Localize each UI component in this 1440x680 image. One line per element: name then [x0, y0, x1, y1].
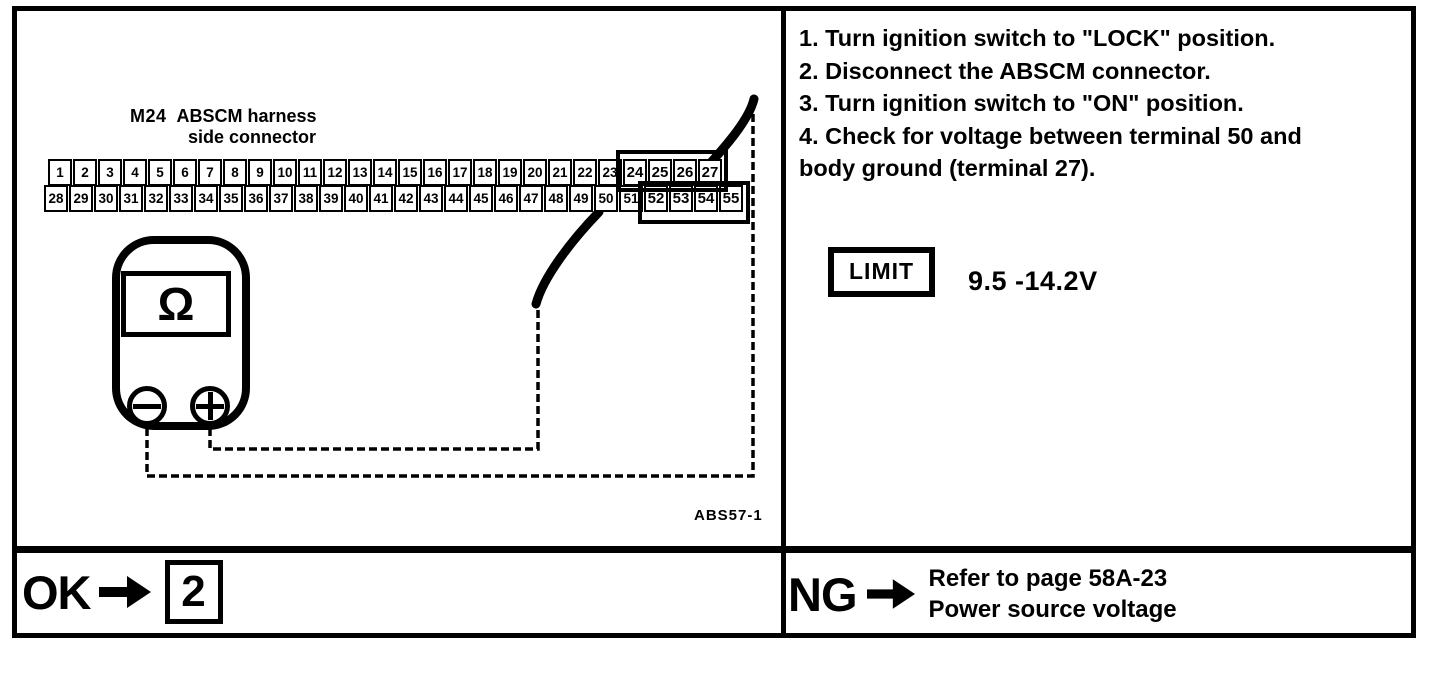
instruction-line: body ground (terminal 27). — [799, 152, 1399, 185]
terminal-32: 32 — [144, 185, 168, 212]
terminal-40: 40 — [344, 185, 368, 212]
terminal-31: 31 — [119, 185, 143, 212]
terminal-10: 10 — [273, 159, 297, 186]
terminal-5: 5 — [148, 159, 172, 186]
terminal-24: 24 — [623, 159, 647, 186]
ohm-symbol: Ω — [158, 277, 195, 331]
terminal-49: 49 — [569, 185, 593, 212]
ng-reference-text: Refer to page 58A-23 Power source voltag… — [929, 563, 1177, 625]
terminal-26: 26 — [673, 159, 697, 186]
terminal-13: 13 — [348, 159, 372, 186]
terminal-42: 42 — [394, 185, 418, 212]
terminal-51: 51 — [619, 185, 643, 212]
terminal-33: 33 — [169, 185, 193, 212]
ng-reference-line2: Power source voltage — [929, 594, 1177, 625]
terminal-28: 28 — [44, 185, 68, 212]
terminal-54: 54 — [694, 185, 718, 212]
terminal-41: 41 — [369, 185, 393, 212]
terminal-38: 38 — [294, 185, 318, 212]
troubleshooting-chart-page: M24 ABSCM harness side connector 1234567… — [0, 0, 1440, 680]
ng-label: NG — [788, 567, 857, 622]
instruction-line: 3. Turn ignition switch to "ON" position… — [799, 87, 1399, 120]
limit-box: LIMIT — [828, 247, 935, 297]
connector-label-line1: ABSCM harness — [177, 106, 317, 126]
horizontal-divider — [12, 546, 1416, 553]
terminal-43: 43 — [419, 185, 443, 212]
terminal-16: 16 — [423, 159, 447, 186]
terminal-2: 2 — [73, 159, 97, 186]
terminal-45: 45 — [469, 185, 493, 212]
terminal-14: 14 — [373, 159, 397, 186]
terminal-46: 46 — [494, 185, 518, 212]
terminal-12: 12 — [323, 159, 347, 186]
terminal-37: 37 — [269, 185, 293, 212]
minus-terminal-icon — [127, 386, 167, 426]
instruction-line: 4. Check for voltage between terminal 50… — [799, 120, 1399, 153]
terminal-1: 1 — [48, 159, 72, 186]
vertical-divider — [781, 6, 786, 638]
terminal-6: 6 — [173, 159, 197, 186]
terminal-3: 3 — [98, 159, 122, 186]
terminal-30: 30 — [94, 185, 118, 212]
ng-reference-line1: Refer to page 58A-23 — [929, 563, 1177, 594]
terminal-39: 39 — [319, 185, 343, 212]
connector-code: M24 — [130, 106, 167, 126]
ok-result-row: OK 2 — [22, 556, 223, 628]
terminal-35: 35 — [219, 185, 243, 212]
instruction-line: 2. Disconnect the ABSCM connector. — [799, 55, 1399, 88]
ok-arrow-icon — [99, 575, 151, 609]
instruction-line: 1. Turn ignition switch to "LOCK" positi… — [799, 22, 1399, 55]
connector-label: M24 ABSCM harness side connector — [130, 106, 317, 148]
terminal-36: 36 — [244, 185, 268, 212]
connector-label-line2: side connector — [130, 127, 317, 148]
terminal-27: 27 — [698, 159, 722, 186]
terminal-29: 29 — [69, 185, 93, 212]
terminal-25: 25 — [648, 159, 672, 186]
terminal-18: 18 — [473, 159, 497, 186]
terminal-19: 19 — [498, 159, 522, 186]
terminal-17: 17 — [448, 159, 472, 186]
terminal-9: 9 — [248, 159, 272, 186]
limit-value: 9.5 -14.2V — [968, 266, 1098, 297]
terminal-21: 21 — [548, 159, 572, 186]
terminal-4: 4 — [123, 159, 147, 186]
terminal-8: 8 — [223, 159, 247, 186]
terminal-48: 48 — [544, 185, 568, 212]
instruction-list: 1. Turn ignition switch to "LOCK" positi… — [799, 22, 1399, 185]
terminal-20: 20 — [523, 159, 547, 186]
terminal-53: 53 — [669, 185, 693, 212]
ng-arrow-icon — [867, 578, 915, 610]
terminal-7: 7 — [198, 159, 222, 186]
ok-target-step: 2 — [165, 560, 223, 624]
ng-result-row: NG Refer to page 58A-23 Power source vol… — [788, 556, 1177, 632]
terminal-15: 15 — [398, 159, 422, 186]
terminal-47: 47 — [519, 185, 543, 212]
figure-code: ABS57-1 — [694, 507, 763, 524]
plus-terminal-icon — [190, 386, 230, 426]
connector-row-bottom: 2829303132333435363738394041424344454647… — [44, 185, 743, 212]
multimeter-display: Ω — [121, 271, 231, 337]
terminal-44: 44 — [444, 185, 468, 212]
terminal-11: 11 — [298, 159, 322, 186]
connector-row-top: 1234567891011121314151617181920212223242… — [48, 159, 722, 186]
multimeter: Ω — [112, 236, 250, 430]
terminal-23: 23 — [598, 159, 622, 186]
ok-label: OK — [22, 565, 91, 620]
terminal-50: 50 — [594, 185, 618, 212]
terminal-34: 34 — [194, 185, 218, 212]
terminal-52: 52 — [644, 185, 668, 212]
terminal-22: 22 — [573, 159, 597, 186]
terminal-55: 55 — [719, 185, 743, 212]
